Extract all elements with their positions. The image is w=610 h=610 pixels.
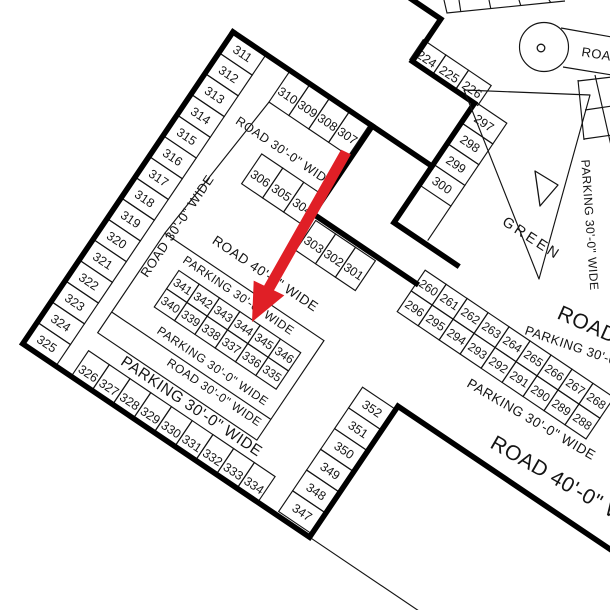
cul-de-sac-stem-line	[561, 28, 610, 37]
plot-number-288: 288	[570, 410, 595, 433]
plot-number-263: 263	[479, 319, 504, 342]
road-label-culdesac: ROAD	[581, 44, 610, 65]
plot-number-294: 294	[444, 325, 469, 348]
top-edge-plot-lines	[444, 0, 565, 13]
green-area-label: GREEN	[499, 214, 564, 264]
phase-boundary-top	[233, 32, 432, 166]
plot-number-290: 290	[528, 382, 553, 405]
plot-number-295: 295	[423, 311, 448, 334]
green-triangle-icon	[535, 171, 558, 206]
edge-plot-lines	[585, 106, 610, 110]
boundary-extension-line	[310, 537, 438, 610]
plot-number-291: 291	[507, 368, 532, 391]
road-edge-line	[428, 206, 451, 240]
top-edge-plot-lines	[519, 0, 521, 6]
plot-number-292: 292	[486, 354, 511, 377]
plot-number-261: 261	[437, 291, 462, 314]
edge-plot-lines	[584, 135, 610, 139]
site-plan-map: 3113123133143153163173183193203213223233…	[0, 0, 610, 610]
parking-corridor-line	[595, 75, 610, 150]
plot-number-296: 296	[402, 297, 427, 320]
site-plan-svg: 3113123133143153163173183193203213223233…	[0, 0, 610, 610]
plot-number-266: 266	[542, 361, 567, 384]
plot-number-267: 267	[563, 375, 588, 398]
top-edge-plot-lines	[459, 0, 461, 12]
plot-number-305: 305	[269, 181, 294, 204]
plot-number-260: 260	[416, 276, 441, 299]
plot-number-264: 264	[500, 333, 525, 356]
edge-plot-lines	[578, 77, 610, 81]
edge-plot-lines	[578, 80, 584, 140]
cul-de-sac-stem-line	[563, 67, 610, 75]
plot-number-293: 293	[465, 340, 490, 363]
parking-label-vertical: PARKING 30'-0" WIDE	[578, 159, 601, 291]
top-edge-plot-lines	[489, 0, 491, 9]
plot-number-262: 262	[458, 305, 483, 328]
plot-number-265: 265	[521, 347, 546, 370]
plot-number-306: 306	[248, 167, 273, 190]
cul-de-sac-island-icon	[537, 44, 545, 52]
plot-number-289: 289	[549, 396, 574, 419]
plot-number-268: 268	[584, 390, 609, 413]
